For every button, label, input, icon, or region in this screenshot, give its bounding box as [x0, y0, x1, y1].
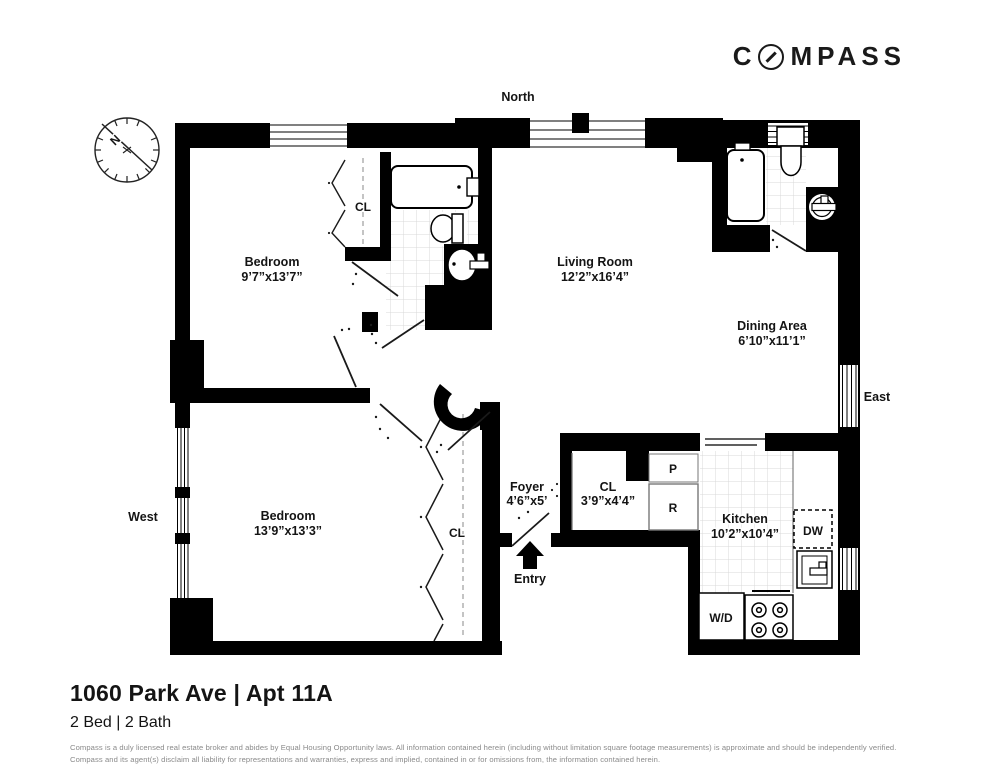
bathtub2 — [727, 150, 764, 221]
disclaimer-text: Compass is a duly licensed real estate b… — [70, 742, 940, 765]
window-east — [840, 365, 858, 427]
living-room-dims-label: 12’2”x16’4” — [561, 270, 629, 284]
disclaimer-line-1: Compass is a duly licensed real estate b… — [70, 742, 940, 754]
bathtub1-faucet-icon — [467, 178, 479, 196]
bedroom1-dims-label: 9’7”x13’7” — [241, 270, 302, 284]
living-room-name-label: Living Room — [557, 255, 633, 269]
entry-door — [512, 511, 549, 546]
kitchen-dims-label: 10’2”x10’4” — [711, 527, 779, 541]
bedroom2-name-label: Bedroom — [261, 509, 316, 523]
hall-closet-dims-label: 3’9”x4’4” — [581, 494, 635, 508]
direction-west-label: West — [128, 510, 158, 524]
window-west — [175, 428, 190, 598]
compass-rose-n-label: N — [107, 132, 123, 148]
entry-arrow-icon — [516, 541, 544, 569]
listing-title: 1060 Park Ave | Apt 11A — [70, 680, 333, 707]
floorplan-drawing: N North East West Bedroom 9’7”x13’7” Bed… — [0, 0, 1000, 772]
refrigerator-label: R — [669, 501, 678, 515]
bathroom2-door — [772, 230, 806, 251]
bathtub2-faucet-icon — [735, 143, 750, 150]
entry-label: Entry — [514, 572, 546, 586]
foyer-name-label: Foyer — [510, 480, 544, 494]
bedroom1-door — [334, 328, 356, 387]
listing-title-block: 1060 Park Ave | Apt 11A 2 Bed | 2 Bath — [70, 680, 333, 732]
window-north-bedroom1 — [270, 123, 347, 148]
dining-area-name-label: Dining Area — [737, 319, 808, 333]
toilet1-tank — [452, 214, 463, 243]
bedroom2-door — [375, 404, 422, 441]
dishwasher-label: DW — [803, 524, 824, 538]
toilet2-bowl — [781, 146, 801, 176]
compass-rose-icon: N — [95, 118, 159, 182]
washer-dryer-label: W/D — [709, 611, 733, 625]
toilet2-tank — [777, 127, 804, 146]
bedroom2-closet-label: CL — [449, 526, 465, 540]
direction-north-label: North — [501, 90, 534, 104]
bedroom2-dims-label: 13’9”x13’3” — [254, 524, 322, 538]
bedroom1-name-label: Bedroom — [245, 255, 300, 269]
floorplan-page: CMPASS — [0, 0, 1000, 772]
disclaimer-line-2: Compass and its agent(s) disclaim all li… — [70, 754, 940, 766]
listing-subtitle: 2 Bed | 2 Bath — [70, 714, 333, 732]
foyer-dims-label: 4’6”x5’ — [506, 494, 547, 508]
pantry-label: P — [669, 462, 677, 476]
dining-area-dims-label: 6’10”x11’1” — [738, 334, 805, 348]
window-north-living — [530, 113, 645, 148]
hall-closet-name-label: CL — [600, 480, 617, 494]
direction-east-label: East — [864, 390, 891, 404]
kitchen-name-label: Kitchen — [722, 512, 768, 526]
hall-closet-door-dots — [551, 483, 558, 497]
bedroom1-closet-label: CL — [355, 200, 371, 214]
window-southeast-kitchen — [840, 548, 858, 590]
